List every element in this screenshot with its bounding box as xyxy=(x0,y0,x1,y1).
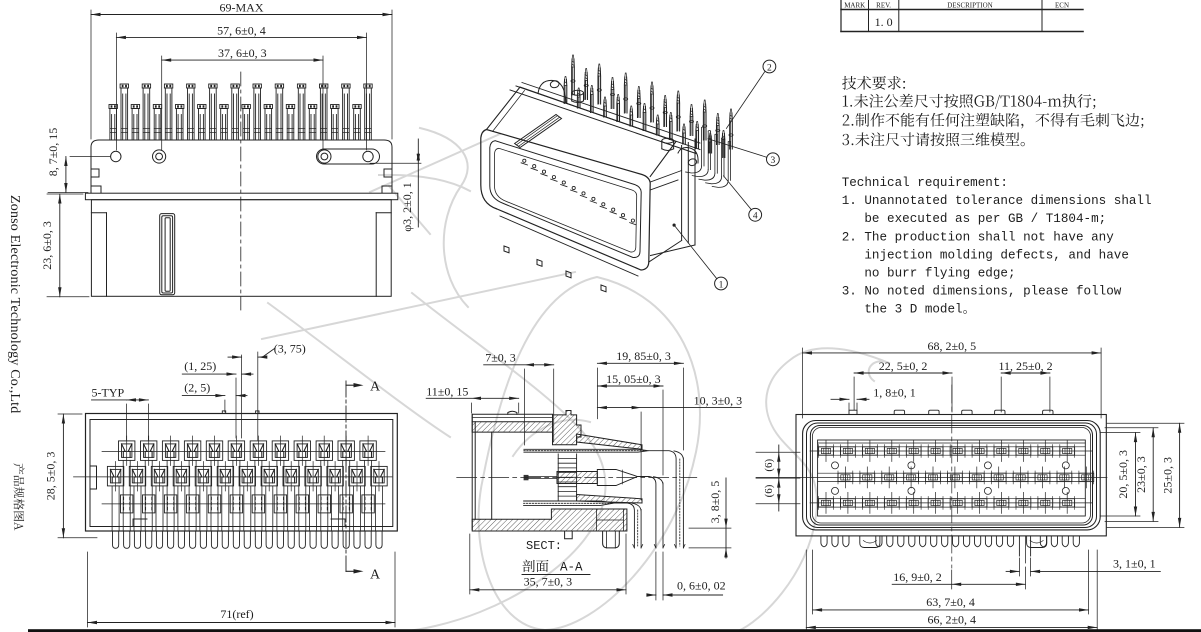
svg-text:28, 5±0, 3: 28, 5±0, 3 xyxy=(44,452,58,501)
svg-text:63, 7±0, 4: 63, 7±0, 4 xyxy=(926,595,975,609)
svg-text:7±0, 3: 7±0, 3 xyxy=(485,351,516,365)
svg-text:11±0, 15: 11±0, 15 xyxy=(426,385,468,399)
svg-text:23, 6±0, 3: 23, 6±0, 3 xyxy=(40,221,54,270)
svg-text:no burr flying edge;: no burr flying edge; xyxy=(842,267,1016,281)
svg-text:A: A xyxy=(370,380,381,395)
svg-text:3, 8±0, 5: 3, 8±0, 5 xyxy=(708,481,722,524)
svg-text:4: 4 xyxy=(753,212,758,222)
svg-text:2. The production shall not ha: 2. The production shall not have any xyxy=(842,230,1115,244)
svg-text:(6): (6) xyxy=(763,458,775,471)
svg-text:(6): (6) xyxy=(763,484,775,497)
svg-text:19, 85±0, 3: 19, 85±0, 3 xyxy=(616,349,671,363)
svg-text:1: 1 xyxy=(719,280,724,290)
svg-text:10, 3±0, 3: 10, 3±0, 3 xyxy=(694,394,743,408)
svg-text:35, 7±0, 3: 35, 7±0, 3 xyxy=(524,575,573,589)
svg-text:71(ref): 71(ref) xyxy=(220,607,253,621)
svg-text:66, 2±0, 4: 66, 2±0, 4 xyxy=(927,613,976,627)
svg-text:0, 6±0, 02: 0, 6±0, 02 xyxy=(677,579,726,593)
svg-text:22, 5±0, 2: 22, 5±0, 2 xyxy=(879,359,928,373)
svg-text:20, 5±0, 3: 20, 5±0, 3 xyxy=(1116,450,1130,499)
svg-text:3: 3 xyxy=(771,156,776,166)
svg-text:5-TYP: 5-TYP xyxy=(92,386,125,400)
svg-text:be executed as per GB / T1804-: be executed as per GB / T1804-m; xyxy=(842,212,1107,226)
svg-text:(2, 5): (2, 5) xyxy=(184,381,210,395)
svg-text:MARK: MARK xyxy=(844,2,865,10)
svg-text:A-A: A-A xyxy=(560,561,583,575)
svg-text:57, 6±0, 4: 57, 6±0, 4 xyxy=(217,23,266,37)
svg-text:37, 6±0, 3: 37, 6±0, 3 xyxy=(218,46,267,60)
svg-text:15, 05±0, 3: 15, 05±0, 3 xyxy=(606,372,661,386)
svg-text:23±0, 3: 23±0, 3 xyxy=(1134,456,1148,493)
svg-text:the 3 D model: the 3 D model xyxy=(842,303,963,317)
svg-text:68, 2±0, 5: 68, 2±0, 5 xyxy=(928,339,977,353)
svg-text:3. No noted dimensions, please: 3. No noted dimensions, please follow xyxy=(842,285,1122,299)
svg-text:Zonso Electronic Technology Co: Zonso Electronic Technology Co.,Ltd xyxy=(7,195,22,413)
svg-text:(1, 25): (1, 25) xyxy=(184,359,216,373)
svg-text:2: 2 xyxy=(767,63,772,73)
svg-text:injection molding defects, and: injection molding defects, and have xyxy=(842,248,1129,262)
svg-text:(3, 75): (3, 75) xyxy=(274,342,306,356)
svg-text:REV.: REV. xyxy=(876,2,891,10)
svg-text:3, 1±0, 1: 3, 1±0, 1 xyxy=(1113,557,1156,571)
svg-text:1. Unannotated tolerance dimen: 1. Unannotated tolerance dimensions shal… xyxy=(842,194,1152,208)
svg-text:1. 0: 1. 0 xyxy=(875,15,893,29)
svg-text:1, 8±0, 1: 1, 8±0, 1 xyxy=(873,386,916,400)
svg-text:Technical requirement:: Technical requirement: xyxy=(842,176,1008,190)
svg-text:25±0, 3: 25±0, 3 xyxy=(1161,457,1175,494)
svg-text:16, 9±0, 2: 16, 9±0, 2 xyxy=(893,570,942,584)
svg-text:11, 25±0, 2: 11, 25±0, 2 xyxy=(998,359,1052,373)
svg-text:SECT:: SECT: xyxy=(526,539,562,553)
svg-text:φ3, 2±0, 1: φ3, 2±0, 1 xyxy=(400,182,414,232)
svg-text:ECN: ECN xyxy=(1055,2,1069,10)
svg-text:DESCRIPTION: DESCRIPTION xyxy=(947,2,993,10)
svg-text:8, 7±0, 15: 8, 7±0, 15 xyxy=(46,128,60,177)
svg-text:A: A xyxy=(370,568,381,583)
svg-text:69-MAX: 69-MAX xyxy=(220,1,264,15)
